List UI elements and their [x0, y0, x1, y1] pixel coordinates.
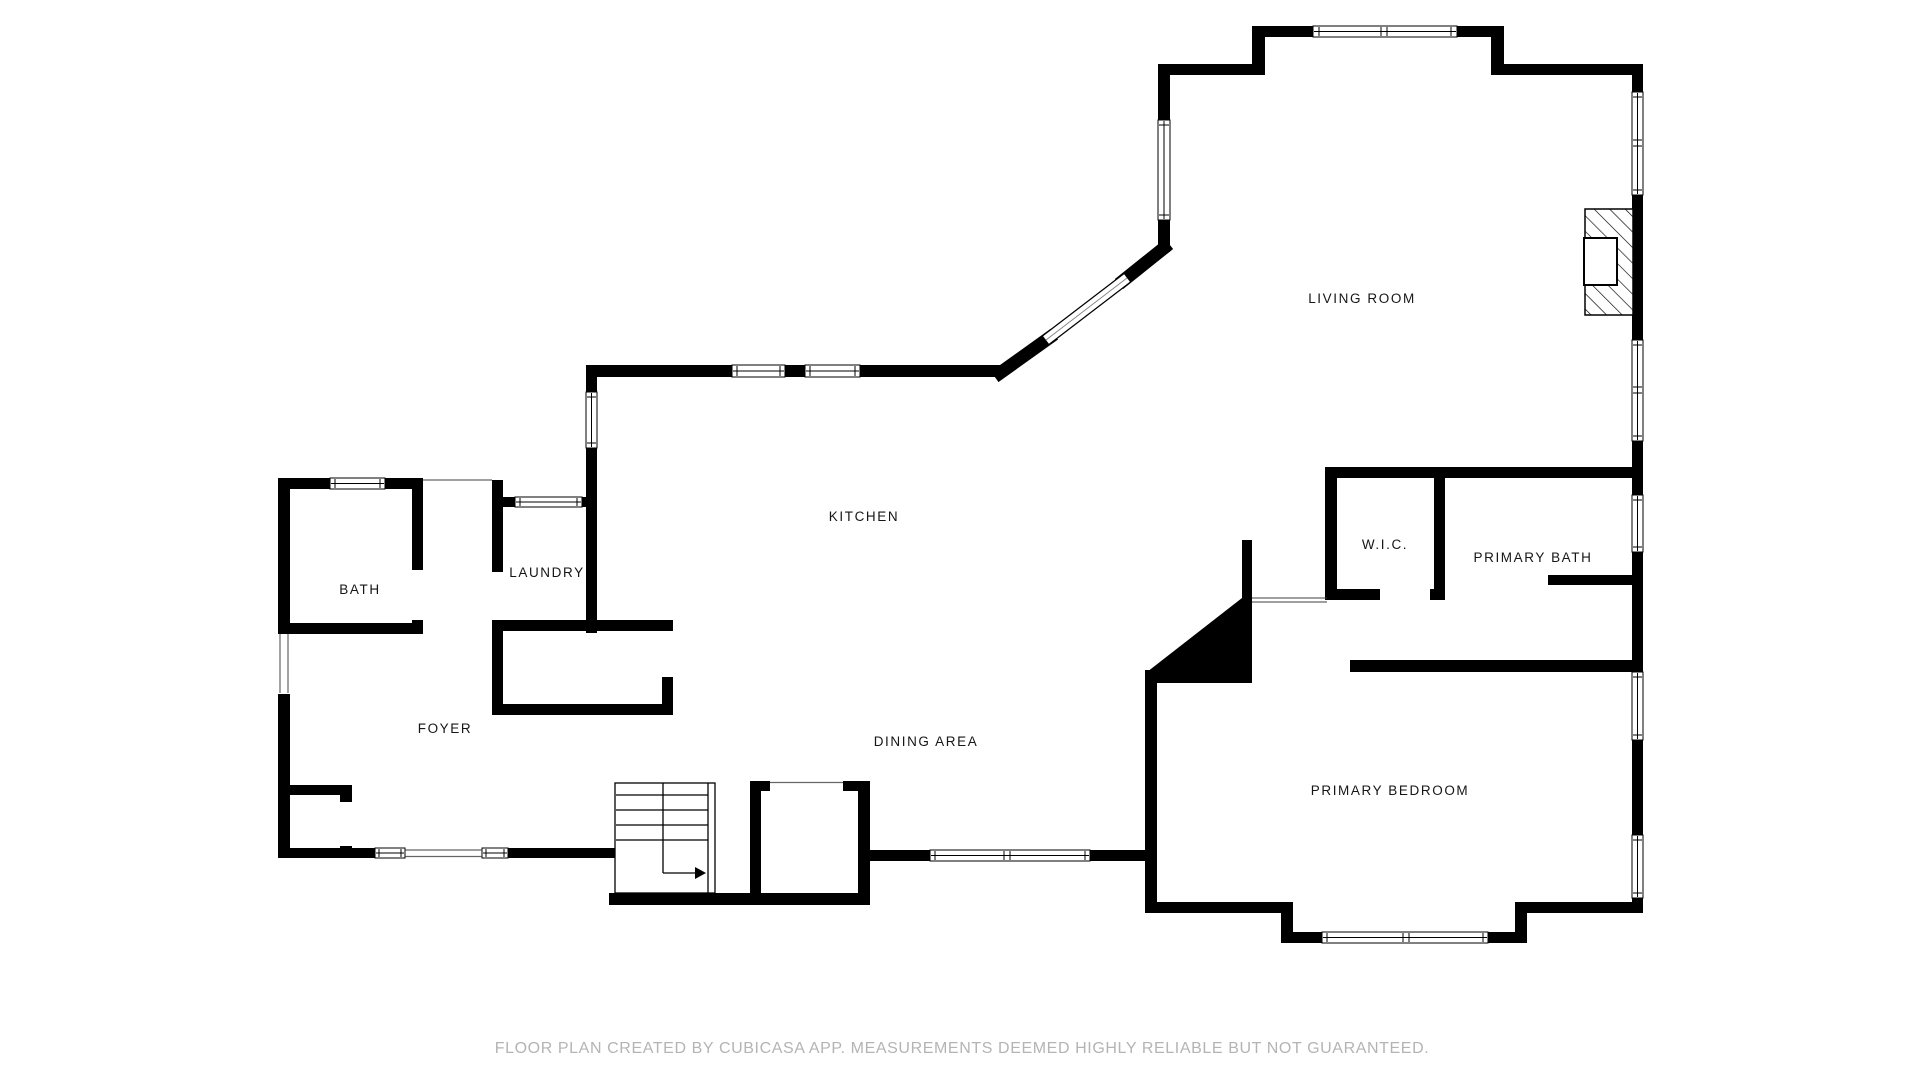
kitchen-top-window-2 — [805, 365, 860, 377]
staircase — [615, 783, 715, 893]
floor-plan-canvas: LIVING ROOM KITCHEN DINING AREA FOYER BA… — [0, 0, 1920, 1080]
room-label-kitchen: KITCHEN — [829, 509, 899, 524]
floor-plan-page: LIVING ROOM KITCHEN DINING AREA FOYER BA… — [0, 0, 1920, 1080]
room-label-bath: BATH — [339, 582, 380, 597]
room-label-primary-bath: PRIMARY BATH — [1474, 550, 1593, 565]
stairs-direction-arrow-icon — [695, 867, 706, 879]
laundry-window — [515, 497, 582, 507]
primary-bedroom-bay-window — [1322, 932, 1488, 943]
bedroom-corner-wedge-wall — [1147, 598, 1252, 683]
room-label-primary-bedroom: PRIMARY BEDROOM — [1311, 783, 1470, 798]
bath-window — [330, 478, 385, 489]
primary-bath-window — [1632, 495, 1643, 552]
windows — [330, 26, 1643, 943]
footer-disclaimer: FLOOR PLAN CREATED BY CUBICASA APP. MEAS… — [495, 1040, 1430, 1057]
exterior-and-interior-walls — [278, 26, 1643, 943]
primary-bedroom-right-window-1 — [1632, 672, 1643, 740]
room-label-living-room: LIVING ROOM — [1308, 291, 1416, 306]
primary-bedroom-right-window-2 — [1632, 835, 1643, 898]
room-label-wic: W.I.C. — [1362, 537, 1408, 552]
kitchen-top-window-1 — [732, 365, 785, 377]
fireplace-icon — [1584, 209, 1633, 315]
diagonal-window — [1046, 278, 1127, 340]
foyer-window-2 — [482, 848, 508, 858]
living-room-left-window — [1158, 120, 1170, 220]
living-room-right-window-2 — [1632, 340, 1643, 441]
room-label-foyer: FOYER — [418, 721, 473, 736]
room-label-dining-area: DINING AREA — [874, 734, 979, 749]
dining-area-window — [930, 850, 1090, 861]
kitchen-west-window — [586, 392, 597, 448]
living-room-right-window-1 — [1632, 92, 1643, 195]
bay-window-top — [1313, 26, 1457, 37]
foyer-window-1 — [375, 848, 405, 858]
room-label-laundry: LAUNDRY — [509, 565, 584, 580]
diagonal-wall — [1000, 248, 1164, 373]
